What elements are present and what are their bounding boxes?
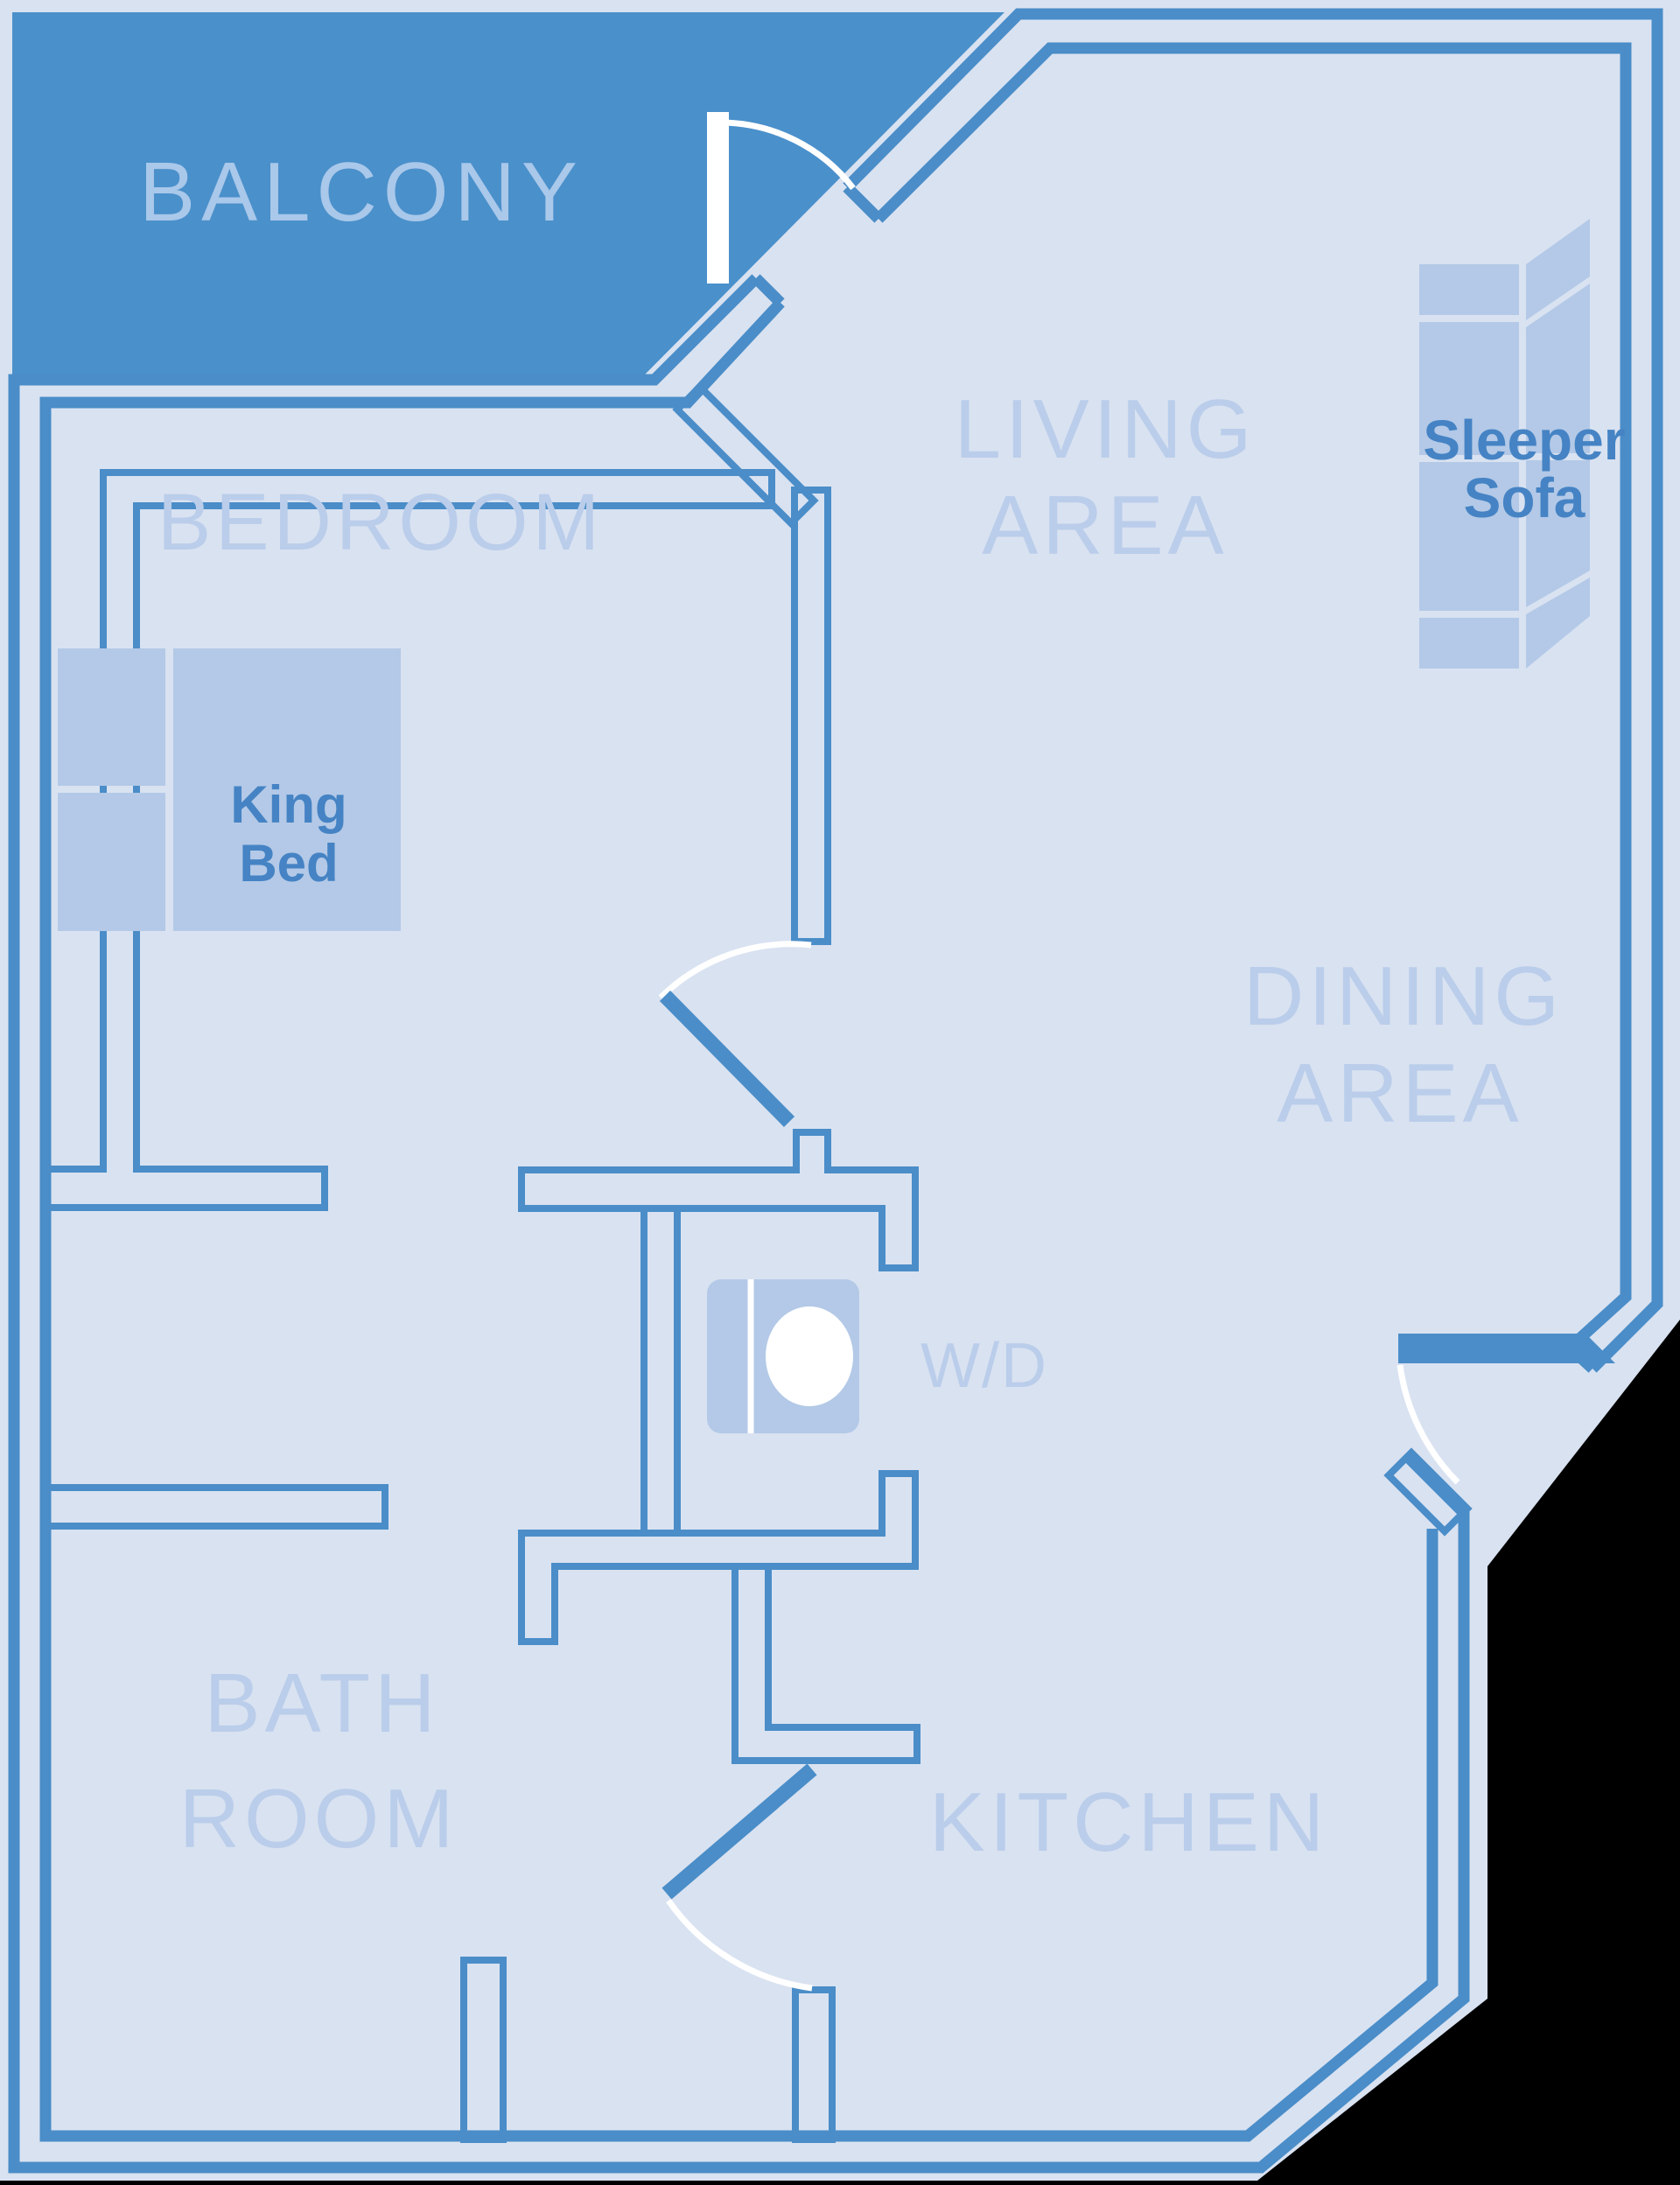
balcony-door-leaf [707,112,729,284]
king-bed-label-line2: Bed [239,834,338,893]
washer-door [766,1306,853,1406]
sofa-back-top [1419,264,1519,315]
living-area-label-line2: AREA [982,479,1228,572]
bathroom-label-line1: BATH [205,1656,440,1750]
washer-dryer-icon [707,1279,859,1433]
sleeper-sofa-label-line1: Sleeper [1423,409,1625,472]
dining-area-label-line2: AREA [1277,1047,1522,1140]
floor-plan: King Bed Sleeper Sofa BALCONY BEDROOM LI… [0,0,1680,2185]
kitchen-label: KITCHEN [929,1775,1328,1869]
king-bed-label-line1: King [230,775,346,834]
bed-pillow-top [58,648,165,786]
balcony-label: BALCONY [139,145,584,239]
bathroom-label-line2: ROOM [179,1772,458,1866]
living-area-label-line1: LIVING [955,382,1256,476]
floor-plan-page: King Bed Sleeper Sofa BALCONY BEDROOM LI… [0,0,1680,2185]
dining-area-label-line1: DINING [1243,949,1564,1043]
bed-pillow-bottom [58,793,165,931]
dining-door-leaf [1398,1334,1615,1363]
sofa-bottom [1419,618,1519,669]
washer-dryer-label: W/D [920,1331,1048,1401]
bedroom-label: BEDROOM [157,478,604,567]
sleeper-sofa-label-line2: Sofa [1464,466,1585,529]
